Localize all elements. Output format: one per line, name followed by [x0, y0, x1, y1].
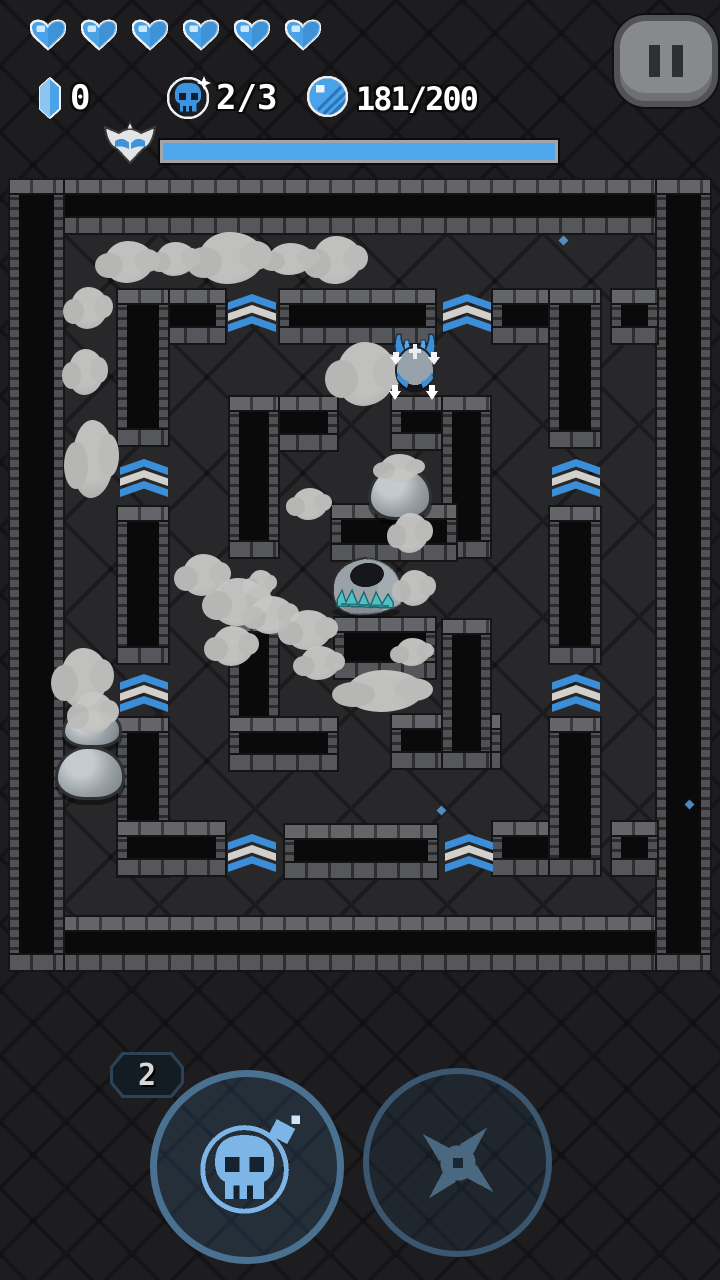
boss-health-bar — [160, 140, 558, 163]
wall-block — [612, 822, 657, 875]
wall-block — [550, 290, 600, 447]
conveyor-chevron-pad — [443, 294, 491, 332]
winged-skull-icon — [103, 119, 157, 169]
wall-block — [10, 180, 63, 970]
crystal-count: 0 — [70, 76, 90, 120]
coin-icon — [306, 75, 349, 118]
wall-block — [230, 718, 337, 770]
heart-icon — [30, 16, 66, 54]
wall-block — [10, 917, 710, 970]
crystal-icon — [38, 77, 62, 119]
conveyor-chevron-pad — [228, 834, 276, 872]
wall-block — [10, 180, 710, 233]
wall-block — [443, 620, 490, 768]
wall-block — [230, 397, 278, 557]
wall-block — [657, 180, 710, 970]
bomb-count-badge: 2 — [110, 1052, 184, 1098]
pause-icon — [649, 45, 683, 77]
shuriken-skill-button[interactable] — [363, 1068, 552, 1257]
conveyor-chevron-pad — [552, 674, 600, 712]
heart-icon — [132, 16, 168, 54]
skull-bomb-icon — [166, 74, 212, 120]
heart-icon — [234, 16, 270, 54]
heart-icon — [183, 16, 219, 54]
game-screen[interactable]: 0 2/3 181/200 — [0, 0, 720, 1280]
conveyor-chevron-pad — [120, 459, 168, 497]
health-hearts — [30, 16, 321, 54]
player-character — [385, 330, 445, 402]
wall-block — [550, 507, 600, 663]
wall-block — [612, 290, 657, 343]
heart-icon — [285, 16, 321, 54]
rock-boulder — [55, 746, 125, 800]
bomb-badge-count: 2 — [138, 1058, 156, 1093]
bomb-skill-button[interactable] — [150, 1070, 344, 1264]
maze-viewport[interactable] — [10, 180, 710, 970]
heart-icon — [81, 16, 117, 54]
conveyor-chevron-pad — [552, 459, 600, 497]
coin-count: 181/200 — [356, 77, 477, 121]
boss-health-fill — [163, 143, 555, 160]
bomb-count: 2/3 — [216, 76, 277, 120]
wall-block — [285, 825, 437, 878]
skull-bomb-icon — [188, 1108, 306, 1226]
conveyor-chevron-pad — [445, 834, 493, 872]
conveyor-chevron-pad — [120, 674, 168, 712]
wall-block — [550, 718, 600, 875]
pause-button[interactable] — [614, 15, 718, 107]
wall-block — [118, 290, 168, 445]
conveyor-chevron-pad — [228, 294, 276, 332]
wall-block — [118, 822, 225, 875]
wall-block — [118, 507, 168, 663]
shuriken-icon — [408, 1113, 508, 1213]
